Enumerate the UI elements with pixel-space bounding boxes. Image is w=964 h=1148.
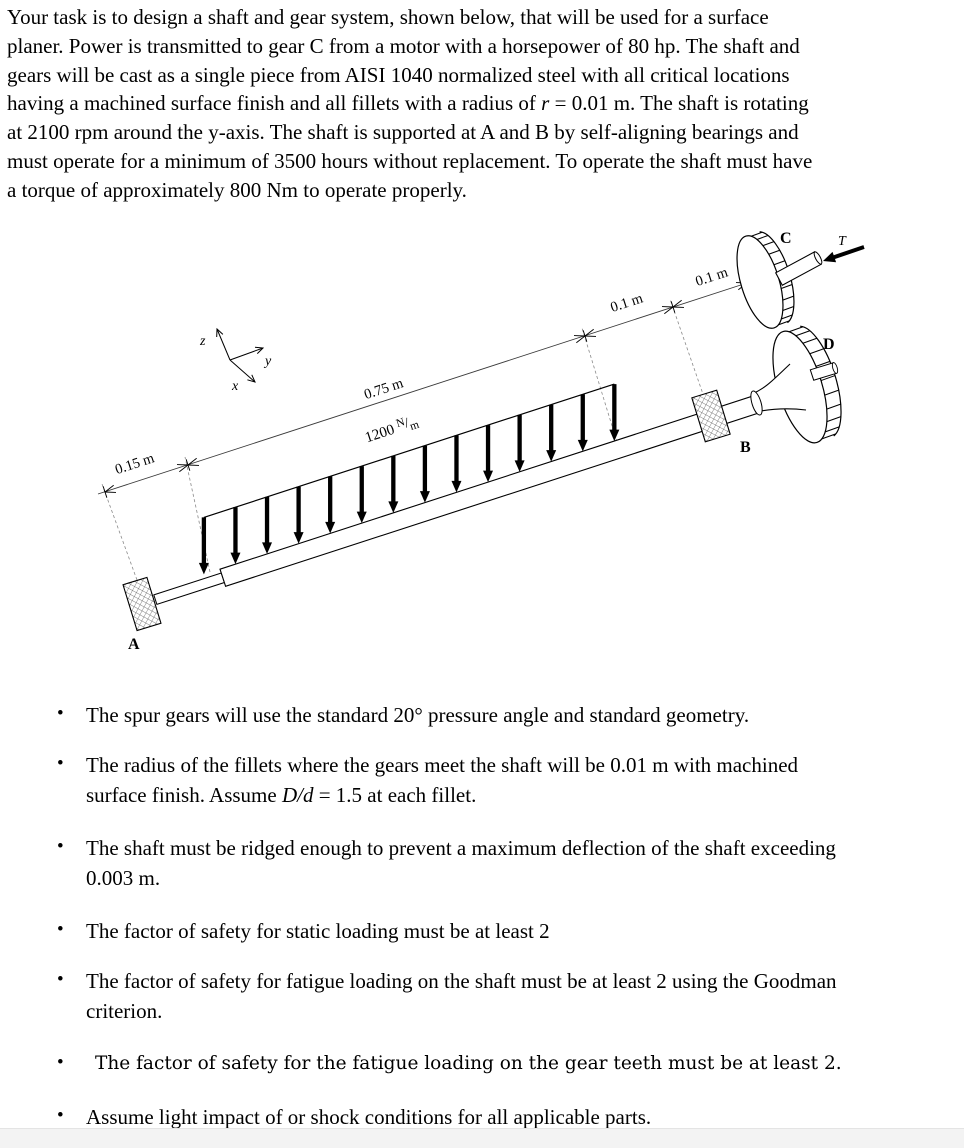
bullet-dot: •: [57, 832, 64, 862]
intro-line: a torque of approximately 800 Nm to oper…: [7, 176, 963, 205]
bullet-text-run: 0.003 m.: [86, 866, 160, 890]
dim-label-0-1m-a: 0.1 m: [609, 290, 646, 316]
gear-tooth-line: [810, 349, 824, 354]
bullet-text-run: = 1.5 at each fillet.: [313, 783, 476, 807]
dim-label-0-75m: 0.75 m: [362, 375, 406, 403]
torque-label: T: [838, 234, 847, 249]
bullet-text-run: The radius of the fillets where the gear…: [86, 753, 798, 777]
bullet-text: The factor of safety for the fatigue loa…: [95, 1049, 954, 1079]
bullet-text: The factor of safety for static loading …: [86, 916, 954, 946]
shaft: [154, 396, 758, 604]
requirements-list: •The spur gears will use the standard 20…: [0, 700, 964, 1132]
bullet-line: The factor of safety for the fatigue loa…: [95, 1049, 954, 1079]
bullet-line: The factor of safety for static loading …: [86, 916, 954, 946]
intro-line: Your task is to design a shaft and gear …: [7, 3, 963, 32]
intro-line: having a machined surface finish and all…: [7, 89, 963, 118]
diagram-area: 0.15 m 0.75 m 0.1 m 0.1 m z y x C T D: [0, 222, 964, 692]
gear-c-label: C: [780, 230, 792, 247]
intro-text: = 0.01 m. The shaft is rotating: [549, 91, 808, 115]
bullet-dot: •: [57, 1101, 64, 1131]
bullet-text-italic: D/d: [282, 783, 314, 807]
load-arrow-head: [230, 553, 240, 565]
load-arrow-head: [325, 522, 335, 534]
gear-tooth-line: [825, 390, 839, 395]
gear-tooth-line: [757, 235, 768, 239]
bullet-item: •The factor of safety for fatigue loadin…: [0, 966, 964, 1026]
bullet-text-run: The factor of safety for the fatigue loa…: [95, 1053, 842, 1074]
gear-tooth-line: [827, 404, 841, 409]
bullet-line: The shaft must be ridged enough to preve…: [86, 833, 954, 863]
document-page: { "intro": { "lines": [ [{"t":"Your task…: [0, 0, 964, 1148]
axis-label-y: y: [263, 354, 272, 369]
dimension-arrow-barb: [105, 485, 114, 492]
gear-tooth-line: [827, 417, 841, 422]
intro-line: must operate for a minimum of 3500 hours…: [7, 147, 963, 176]
bullet-dot: •: [57, 1048, 64, 1078]
bullet-line: 0.003 m.: [86, 863, 954, 893]
bearing-a-label: A: [128, 636, 140, 653]
bullet-line: The factor of safety for fatigue loading…: [86, 966, 954, 996]
bullet-text-run: Assume light impact of or shock conditio…: [86, 1105, 651, 1129]
load-arrow-head: [294, 532, 304, 544]
intro-line: gears will be cast as a single piece fro…: [7, 61, 963, 90]
intro-paragraph: Your task is to design a shaft and gear …: [7, 3, 963, 205]
intro-line: at 2100 rpm around the y-axis. The shaft…: [7, 118, 963, 147]
axis-label-z: z: [199, 334, 206, 349]
load-arrow-head: [388, 501, 398, 513]
bullet-text: The factor of safety for fatigue loading…: [86, 966, 954, 1026]
gear-tooth-line: [789, 327, 803, 332]
bullet-line: The radius of the fillets where the gear…: [86, 750, 954, 780]
gear-tooth-line: [769, 250, 780, 254]
intro-text: having a machined surface finish and all…: [7, 91, 541, 115]
load-value: 1200: [363, 422, 396, 446]
load-unit-denominator: m: [408, 419, 420, 433]
dim-label-0-15m: 0.15 m: [113, 450, 157, 478]
bullet-text: The shaft must be ridged enough to preve…: [86, 833, 954, 893]
intro-text: must operate for a minimum of 3500 hours…: [7, 149, 812, 173]
bullet-text-run: The factor of safety for fatigue loading…: [86, 969, 837, 993]
intro-text: Your task is to design a shaft and gear …: [7, 5, 769, 29]
bullet-text-run: The factor of safety for static loading …: [86, 919, 550, 943]
bullet-text-run: The shaft must be ridged enough to preve…: [86, 836, 836, 860]
gear-tooth-line: [803, 338, 817, 343]
load-arrow-head: [357, 512, 367, 524]
bullet-text-run: The spur gears will use the standard 20°…: [86, 703, 749, 727]
bullet-item: •The shaft must be ridged enough to prev…: [0, 833, 964, 893]
shaft-gear-diagram: 0.15 m 0.75 m 0.1 m 0.1 m z y x C T D: [0, 222, 964, 692]
intro-text: a torque of approximately 800 Nm to oper…: [7, 178, 467, 202]
bullet-line: surface finish. Assume D/d = 1.5 at each…: [86, 780, 954, 810]
bullet-dot: •: [57, 749, 64, 779]
bullet-dot: •: [57, 965, 64, 995]
bullet-text-run: surface finish. Assume: [86, 783, 282, 807]
bearing-a: [123, 577, 161, 630]
bullet-item: •The factor of safety for static loading…: [0, 916, 964, 946]
intro-text: at 2100 rpm around the y-axis. The shaft…: [7, 120, 799, 144]
bullet-line: The spur gears will use the standard 20°…: [86, 700, 954, 730]
gear-tooth-line: [774, 261, 785, 265]
bullet-text: The spur gears will use the standard 20°…: [86, 700, 954, 730]
bullet-item: •The radius of the fillets where the gea…: [0, 750, 964, 810]
intro-line: planer. Power is transmitted to gear C f…: [7, 32, 963, 61]
dimension-arrow-barb: [585, 329, 594, 336]
dim-label-0-1m-b: 0.1 m: [694, 264, 731, 290]
gear-d-label: D: [823, 336, 835, 353]
bullet-dot: •: [57, 915, 64, 945]
intro-text: gears will be cast as a single piece fro…: [7, 63, 790, 87]
page-bottom-strip: [0, 1128, 964, 1148]
load-arrow-head: [199, 563, 209, 575]
bullet-item: •The factor of safety for the fatigue lo…: [0, 1049, 964, 1079]
bullet-dot: •: [57, 699, 64, 729]
gear-tooth-line: [783, 296, 794, 300]
axis-label-x: x: [231, 379, 239, 394]
gear-tooth-line: [783, 307, 794, 311]
bullet-text-run: criterion.: [86, 999, 162, 1023]
gear-tooth-line: [751, 232, 762, 236]
dimension-arrow-barb: [188, 458, 197, 465]
load-arrow-head: [262, 542, 272, 554]
gear-tooth-line: [763, 242, 774, 246]
load-label: 1200 N/m: [363, 412, 421, 447]
gear-tooth-line: [796, 331, 810, 336]
bullet-text: The radius of the fillets where the gear…: [86, 750, 954, 810]
intro-text: planer. Power is transmitted to gear C f…: [7, 34, 800, 58]
bullet-line: criterion.: [86, 996, 954, 1026]
bearing-b: [692, 390, 730, 442]
bullet-item: •The spur gears will use the standard 20…: [0, 700, 964, 730]
coordinate-axes: [217, 329, 263, 382]
bearing-b-label: B: [740, 439, 751, 456]
